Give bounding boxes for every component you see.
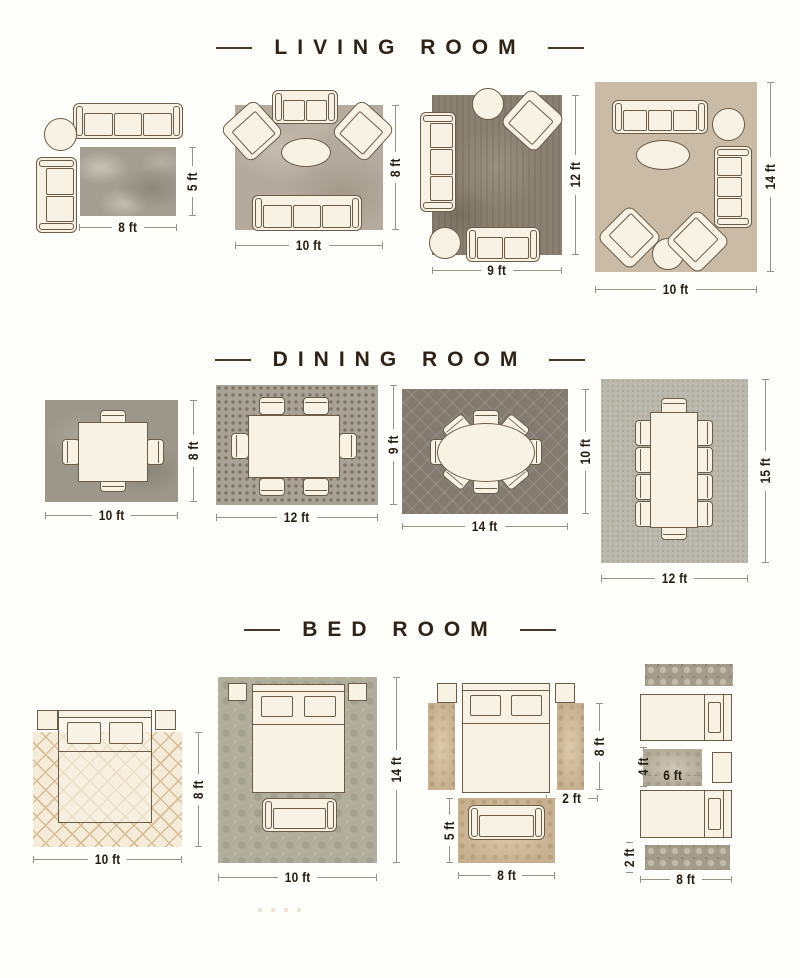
section-title: BED ROOM — [302, 618, 498, 642]
dimension-label: 10 ft — [296, 238, 322, 253]
width-dimension: 14 ft — [402, 519, 568, 533]
height-dimension: 8 ft — [388, 105, 402, 230]
bedroom-layout-2: 14 ft 10 ft — [215, 672, 401, 886]
dining-layout-3: 10 ft 14 ft — [400, 388, 594, 538]
living-layout-4: 14 ft 10 ft — [592, 78, 790, 302]
bed — [462, 683, 550, 793]
living-layout-1: 5 ft 8 ft — [32, 95, 212, 240]
dimension-label: 10 ft — [95, 852, 121, 867]
height-dimension: 14 ft — [763, 82, 777, 272]
sofa — [420, 112, 456, 212]
headboard — [463, 684, 549, 691]
loveseat — [466, 227, 540, 262]
section-title: LIVING ROOM — [274, 36, 525, 60]
dining-table — [248, 415, 340, 478]
dining-layout-2: 9 ft 12 ft — [212, 382, 402, 534]
headboard — [59, 711, 151, 718]
pillow — [708, 702, 721, 733]
pillow — [708, 798, 721, 830]
blanket-line — [704, 695, 705, 740]
dining-table — [650, 412, 698, 528]
nightstand — [555, 683, 575, 703]
headboard — [723, 695, 724, 740]
blanket-line — [463, 723, 549, 724]
dimension-label: 5 ft — [185, 172, 200, 191]
side-table — [44, 118, 77, 151]
dining-layout-1: 8 ft 10 ft — [42, 398, 204, 528]
dining-chair — [259, 397, 285, 415]
dimension-label: 14 ft — [389, 757, 404, 783]
height-dimension: 15 ft — [758, 379, 772, 563]
side-table — [712, 108, 745, 141]
dining-chair — [259, 478, 285, 496]
dimension-label: 9 ft — [386, 436, 401, 455]
title-dash — [216, 47, 252, 49]
dining-chair — [231, 433, 249, 459]
width-dimension: 12 ft — [216, 510, 378, 524]
title-dash — [244, 629, 280, 631]
sofa — [714, 146, 752, 228]
nightstand — [437, 683, 457, 703]
height-dimension: 8 ft — [186, 400, 200, 502]
pillow — [67, 722, 101, 744]
living-layout-3: 12 ft 9 ft — [415, 80, 587, 282]
coffee-table — [636, 140, 690, 170]
dimension-label: 10 ft — [99, 508, 125, 523]
height-dimension: 14 ft — [389, 677, 403, 863]
section-title: DINING ROOM — [273, 348, 528, 372]
runner-rug — [557, 703, 584, 790]
bench — [262, 798, 337, 832]
nightstand — [712, 752, 732, 783]
sofa — [252, 195, 362, 231]
bed-height-dimension: 8 ft — [592, 703, 606, 790]
dimension-label: 8 ft — [497, 868, 516, 883]
pillow — [261, 696, 293, 717]
rug — [80, 147, 176, 216]
bench — [468, 805, 545, 840]
nightstand — [155, 710, 176, 730]
dimension-label: 8 ft — [677, 872, 696, 887]
nightstand — [228, 683, 247, 701]
bed — [58, 710, 152, 823]
loveseat — [272, 90, 338, 124]
rug-size-guide-infographic: LIVING ROOM DINING ROOM BED ROOM 5 ft 8 … — [0, 0, 800, 978]
title-dash — [549, 359, 585, 361]
side-table — [472, 88, 504, 120]
dimension-label: 14 ft — [472, 519, 498, 534]
dimension-label: 12 ft — [284, 510, 310, 525]
dimension-label: 12 ft — [568, 162, 583, 188]
title-dash — [548, 47, 584, 49]
loveseat — [36, 157, 77, 233]
dimension-label: 5 ft — [442, 821, 457, 840]
bed — [252, 684, 345, 793]
living-layout-2: 8 ft 10 ft — [218, 88, 404, 258]
dimension-label: 8 ft — [191, 780, 206, 799]
sofa — [73, 103, 183, 139]
dimension-label: 8 ft — [119, 220, 138, 235]
runner-rug — [645, 664, 733, 686]
mid-rug-width-dimension: 6 ft — [643, 768, 702, 782]
bedroom-layout-1: 8 ft 10 ft — [30, 700, 212, 872]
oval-dining-table — [437, 423, 535, 482]
headboard — [723, 791, 724, 837]
sofa — [612, 100, 708, 134]
coffee-table — [281, 138, 331, 167]
dimension-label: 9 ft — [488, 263, 507, 278]
width-dimension: 10 ft — [45, 508, 178, 522]
dimension-label: 8 ft — [592, 737, 607, 756]
height-dimension: 10 ft — [578, 389, 592, 514]
foot-rug-width-dimension: 8 ft — [458, 868, 555, 882]
dining-layout-4: 15 ft 12 ft — [595, 372, 791, 592]
nightstand — [348, 683, 367, 701]
dimension-label: 2 ft — [563, 791, 582, 806]
dimension-label: 10 ft — [285, 870, 311, 885]
blanket-line — [59, 751, 151, 752]
foot-rug-height-dimension: 5 ft — [442, 798, 456, 863]
height-dimension: 8 ft — [191, 732, 205, 847]
twin-bed — [640, 790, 732, 838]
title-dash — [520, 629, 556, 631]
title-dash — [215, 359, 251, 361]
dining-chair — [303, 397, 329, 415]
nightstand — [37, 710, 58, 730]
dining-chair — [303, 478, 329, 496]
pillow — [109, 722, 143, 744]
dining-table — [78, 422, 148, 482]
width-dimension: 8 ft — [79, 220, 177, 234]
runner-rug — [645, 845, 730, 870]
side-table — [429, 227, 461, 259]
dimension-label: 8 ft — [186, 442, 201, 461]
dining-chair — [146, 439, 164, 465]
width-dimension: 10 ft — [218, 870, 377, 884]
bedroom-layout-4: 4 ft 6 ft 2 ft 8 ft — [622, 658, 798, 892]
dimension-label: 10 ft — [663, 282, 689, 297]
width-dimension: 10 ft — [33, 852, 182, 866]
height-dimension: 5 ft — [185, 147, 199, 216]
width-dimension: 12 ft — [601, 571, 748, 585]
headboard — [253, 685, 344, 692]
dimension-label: 14 ft — [763, 164, 778, 190]
dimension-label: 10 ft — [578, 439, 593, 465]
dimension-label: 6 ft — [663, 768, 682, 783]
height-dimension: 12 ft — [568, 95, 582, 255]
bed-room-title-row: BED ROOM — [0, 618, 800, 642]
blanket-line — [704, 791, 705, 837]
width-dimension: 10 ft — [595, 282, 757, 296]
dimension-label: 8 ft — [388, 158, 403, 177]
dimension-label: 12 ft — [662, 571, 688, 586]
living-room-title-row: LIVING ROOM — [0, 36, 800, 60]
height-dimension: 9 ft — [386, 385, 400, 505]
runner-height-dimension: 2 ft — [622, 842, 636, 873]
dimension-label: 2 ft — [622, 848, 637, 867]
width-dimension: 9 ft — [432, 263, 562, 277]
width-dimension: 10 ft — [235, 238, 383, 252]
pillow — [511, 695, 542, 716]
bedroom-layout-3: 8 ft 2 ft 5 ft 8 ft — [420, 675, 608, 890]
pillow — [304, 696, 336, 717]
blanket-line — [253, 724, 344, 725]
width-dimension: 8 ft — [640, 872, 732, 886]
pillow — [470, 695, 501, 716]
dimension-label: 15 ft — [758, 458, 773, 484]
dining-chair — [339, 433, 357, 459]
dining-room-title-row: DINING ROOM — [0, 348, 800, 372]
twin-bed — [640, 694, 732, 741]
runner-rug — [428, 703, 455, 790]
faint-watermark — [258, 908, 301, 912]
